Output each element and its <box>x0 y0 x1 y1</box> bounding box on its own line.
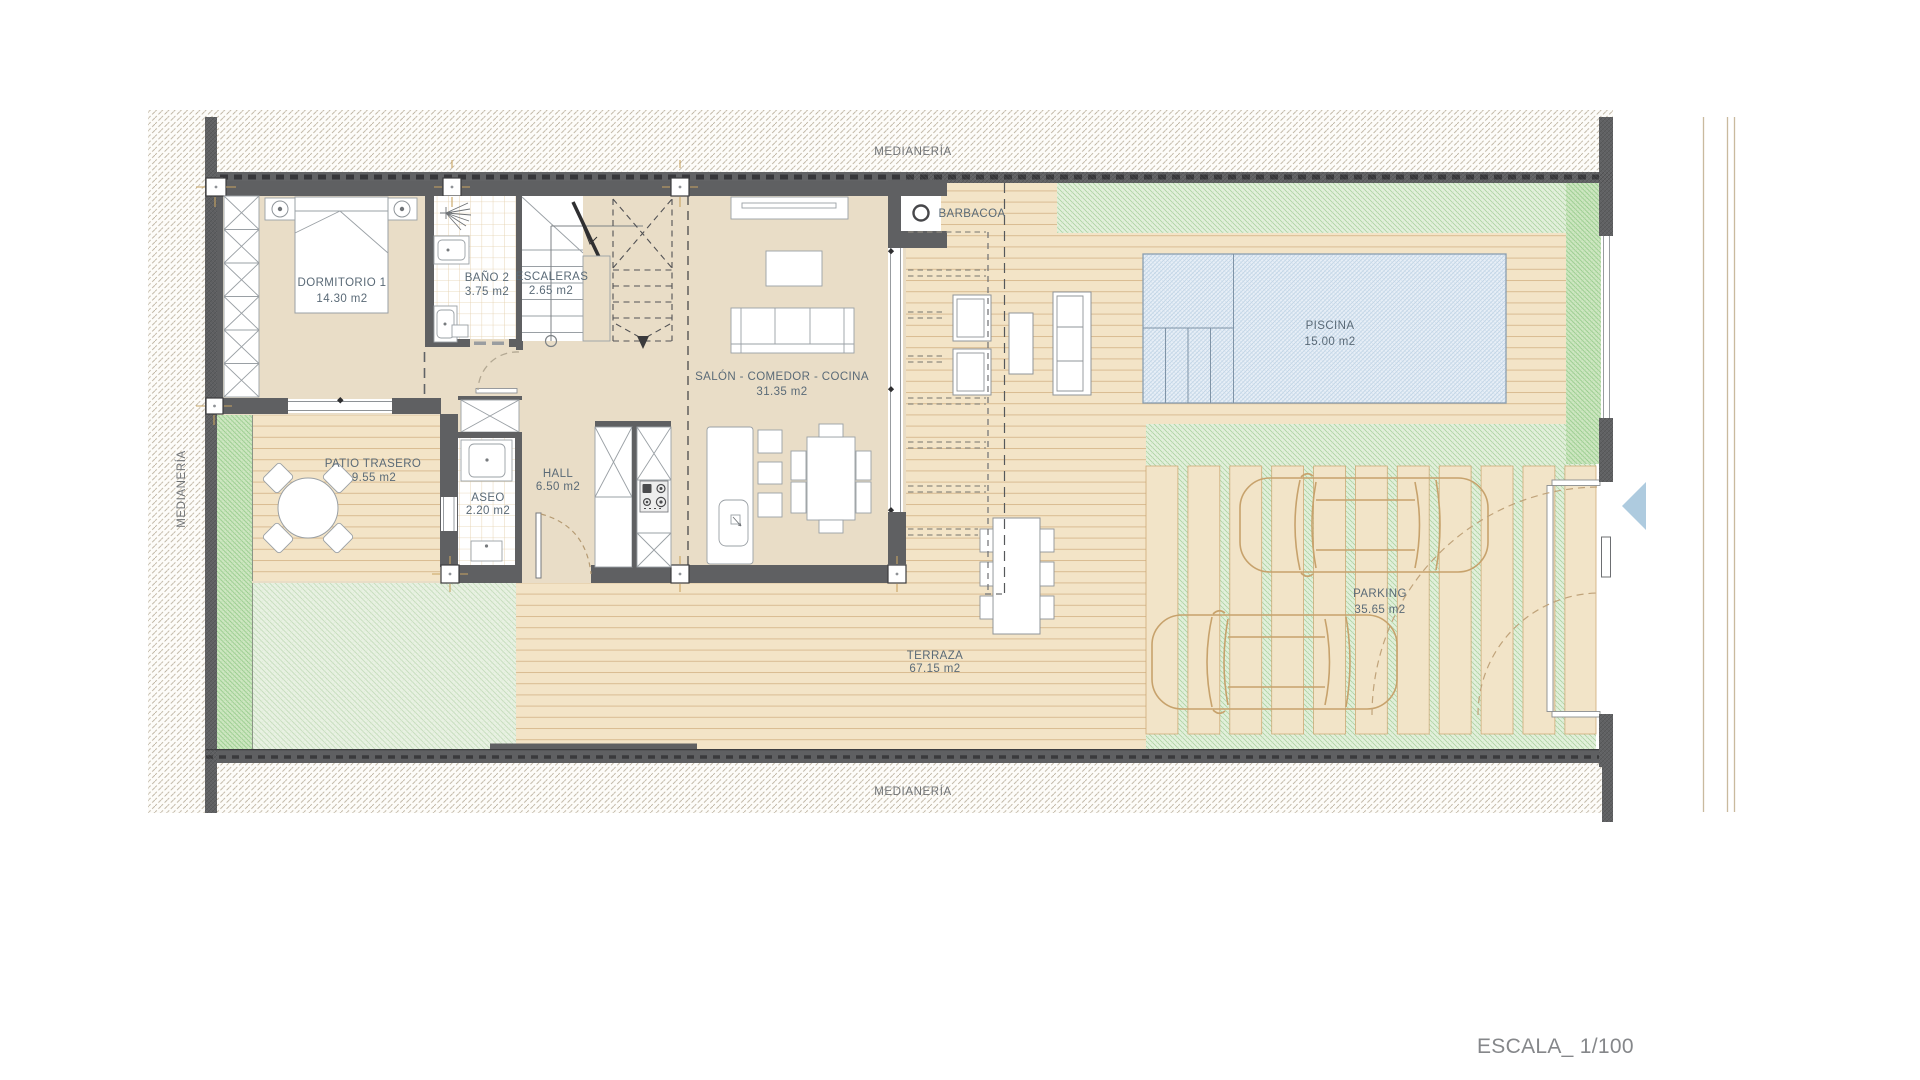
svg-text:31.35 m2: 31.35 m2 <box>756 386 807 398</box>
svg-text:35.65 m2: 35.65 m2 <box>1354 604 1405 616</box>
svg-text:BAÑO 2: BAÑO 2 <box>465 271 510 284</box>
svg-text:SALÓN - COMEDOR - COCINA: SALÓN - COMEDOR - COCINA <box>695 370 869 383</box>
svg-text:14.30 m2: 14.30 m2 <box>316 293 367 305</box>
svg-text:DORMITORIO 1: DORMITORIO 1 <box>298 277 387 289</box>
svg-text:ESCALERAS: ESCALERAS <box>516 271 589 283</box>
svg-text:9.55 m2: 9.55 m2 <box>352 472 396 484</box>
svg-text:MEDIANERÍA: MEDIANERÍA <box>175 450 188 528</box>
svg-text:PARKING: PARKING <box>1353 588 1407 600</box>
svg-text:2.20 m2: 2.20 m2 <box>466 505 510 517</box>
svg-text:MEDIANERÍA: MEDIANERÍA <box>874 145 952 158</box>
svg-text:MEDIANERÍA: MEDIANERÍA <box>874 785 952 798</box>
svg-text:TERRAZA: TERRAZA <box>907 650 963 662</box>
svg-text:67.15 m2: 67.15 m2 <box>909 663 960 675</box>
svg-text:3.75 m2: 3.75 m2 <box>465 286 509 298</box>
svg-text:15.00 m2: 15.00 m2 <box>1304 336 1355 348</box>
svg-text:BARBACOA: BARBACOA <box>938 208 1005 220</box>
svg-text:HALL: HALL <box>543 468 574 480</box>
svg-text:6.50 m2: 6.50 m2 <box>536 481 580 493</box>
svg-text:PATIO TRASERO: PATIO TRASERO <box>325 458 422 470</box>
svg-text:ASEO: ASEO <box>471 492 505 504</box>
svg-text:ESCALA_ 1/100: ESCALA_ 1/100 <box>1477 1035 1634 1058</box>
svg-text:2.65 m2: 2.65 m2 <box>529 285 573 297</box>
svg-text:PISCINA: PISCINA <box>1306 320 1355 332</box>
